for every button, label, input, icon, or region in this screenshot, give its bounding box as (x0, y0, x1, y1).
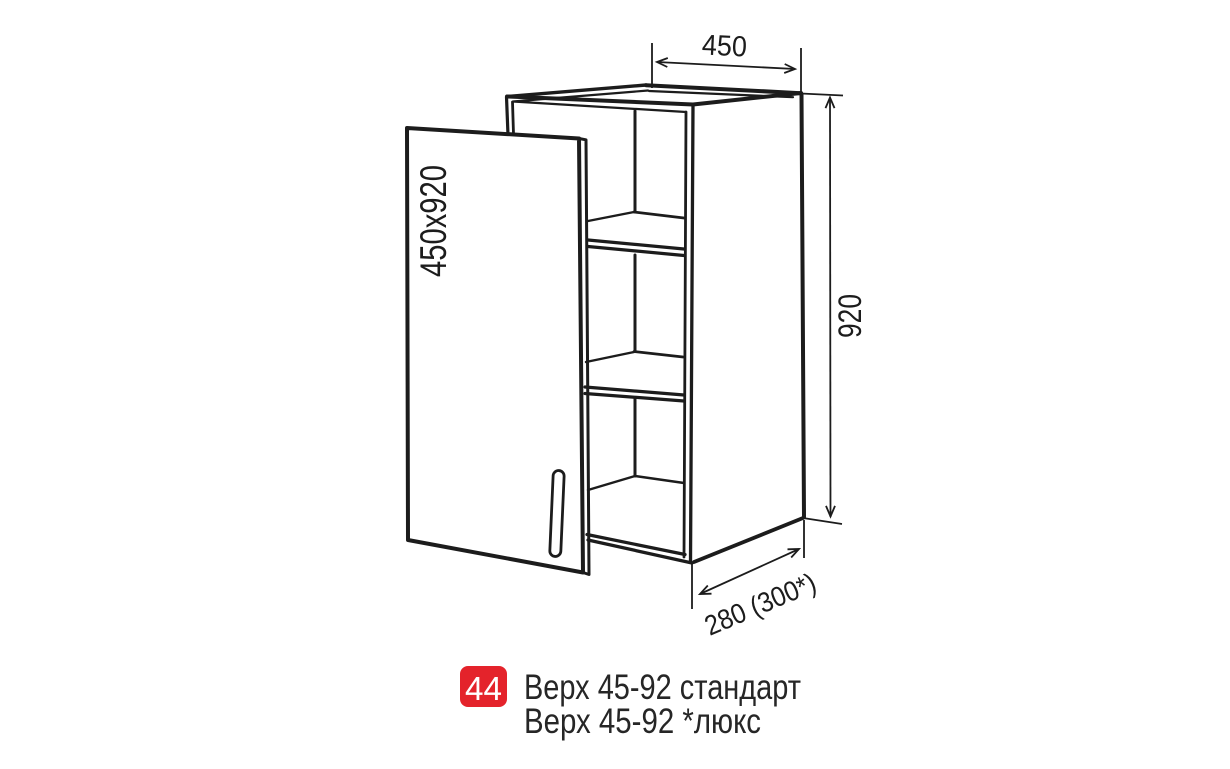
svg-text:44: 44 (465, 670, 502, 707)
svg-text:920: 920 (832, 294, 868, 338)
svg-text:Верх 45-92 *люкс: Верх 45-92 *люкс (524, 701, 761, 741)
svg-text:450x920: 450x920 (413, 165, 454, 277)
svg-text:450: 450 (701, 30, 747, 64)
